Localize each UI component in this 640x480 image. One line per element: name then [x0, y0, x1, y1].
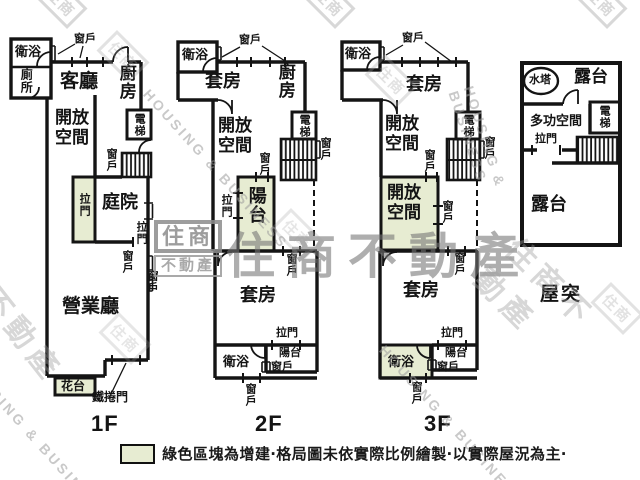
label-2f-sliding-door-low: 拉門: [276, 327, 298, 339]
label-3f-sliding-door-low: 拉門: [441, 327, 463, 339]
label-2f-elevator: 電梯: [298, 114, 310, 138]
label-3f-window-top: 窗戶: [402, 32, 424, 44]
legend: 綠色區塊為增建‧格局圖未依實際比例繪製‧以實際屋況為主‧: [120, 443, 567, 464]
label-2f-sliding-door-balcony: 拉門: [220, 194, 232, 218]
label-roof-multi-room: 多功空間: [530, 114, 582, 128]
stairs-icon: [577, 137, 618, 163]
label-1f-window-right-2: 窗戶: [146, 270, 158, 294]
floor-roof-plan: [522, 63, 620, 245]
label-3f-window-mid: 窗戶: [423, 149, 435, 173]
label-3f-balcony-small: 陽台: [445, 347, 467, 359]
label-roof-terrace-top: 露台: [574, 68, 608, 87]
label-1f-window-top: 窗戶: [74, 33, 96, 45]
floor-label-1f: 1F: [91, 412, 119, 436]
label-1f-open-space: 開放空間: [55, 108, 92, 147]
label-1f-rolling-door: 鐵捲門: [92, 391, 128, 404]
label-3f-window-bottom: 窗戶: [410, 381, 422, 405]
label-3f-elevator: 電梯: [462, 114, 474, 138]
label-2f-bath-low: 衛浴: [223, 355, 249, 369]
label-1f-sliding-door-right: 拉門: [135, 221, 147, 245]
label-2f-suite-top: 套房: [205, 72, 241, 92]
floor-label-3f: 3F: [424, 412, 452, 436]
label-1f-window-right-1: 窗戶: [121, 250, 133, 274]
label-2f-open-space: 開放空間: [218, 116, 255, 155]
floor-label-2f: 2F: [255, 412, 283, 436]
label-3f-window-suite: 窗戶: [453, 252, 465, 276]
label-1f-courtyard: 庭院: [102, 193, 138, 213]
legend-note: 綠色區塊為增建‧格局圖未依實際比例繪製‧以實際屋況為主‧: [162, 443, 567, 464]
label-2f-balcony-small: 陽台: [279, 347, 301, 359]
label-1f-living-room: 客廳: [60, 72, 98, 93]
label-1f-kitchen: 廚房: [116, 64, 135, 100]
label-2f-window-stairs: 窗戶: [319, 137, 331, 161]
label-roof-water-tank: 水塔: [529, 74, 551, 86]
label-roof-terrace-low: 露台: [531, 195, 567, 215]
label-3f-bath-top: 衛浴: [345, 47, 371, 61]
label-3f-suite-low: 套房: [403, 281, 439, 301]
door-arc-icon: [563, 90, 578, 104]
label-3f-suite-top: 套房: [406, 75, 442, 95]
label-2f-bath-top: 衛浴: [182, 48, 208, 62]
label-1f-elevator: 電梯: [133, 113, 145, 137]
label-1f-business-hall: 營業廳: [62, 297, 119, 318]
label-2f-window-balcony: 窗戶: [271, 361, 293, 373]
label-2f-balcony-green: 陽台: [246, 186, 266, 224]
label-2f-kitchen: 廚房: [275, 63, 294, 99]
label-2f-window-bottom: 窗戶: [244, 383, 256, 407]
label-3f-window-green: 窗戶: [441, 200, 453, 224]
label-2f-suite-low: 套房: [240, 286, 276, 306]
stairs-icon: [122, 153, 151, 177]
label-3f-open-space-up: 開放空間: [385, 114, 422, 153]
label-3f-open-space-green: 開放空間: [387, 183, 424, 222]
label-1f-window-stairs: 窗戶: [105, 148, 117, 172]
label-3f-bath-green: 衛浴: [388, 355, 414, 369]
label-roof-elevator: 電梯: [598, 105, 610, 129]
floorplan-canvas: 衛浴 廁所 窗戶 客廳 廚房 電梯 開放空間 窗戶 拉門 庭院 拉門 窗戶 窗戶…: [0, 0, 640, 480]
label-1f-toilet: 廁所: [19, 68, 32, 94]
label-2f-window-top: 窗戶: [239, 34, 261, 46]
label-1f-bath: 衛浴: [15, 45, 41, 59]
label-1f-flower-bed: 花台: [61, 380, 85, 393]
label-3f-window-stairs: 窗戶: [483, 136, 495, 160]
label-roof-sliding-door: 拉門: [535, 133, 557, 145]
label-2f-window-mid: 窗戶: [258, 152, 270, 176]
floor-label-roof: 屋突: [540, 285, 582, 306]
label-2f-window-suite: 窗戶: [285, 253, 297, 277]
label-3f-window-balcony: 窗戶: [437, 361, 459, 373]
legend-swatch-green: [120, 444, 155, 464]
label-1f-sliding-door-green: 拉門: [78, 193, 90, 217]
